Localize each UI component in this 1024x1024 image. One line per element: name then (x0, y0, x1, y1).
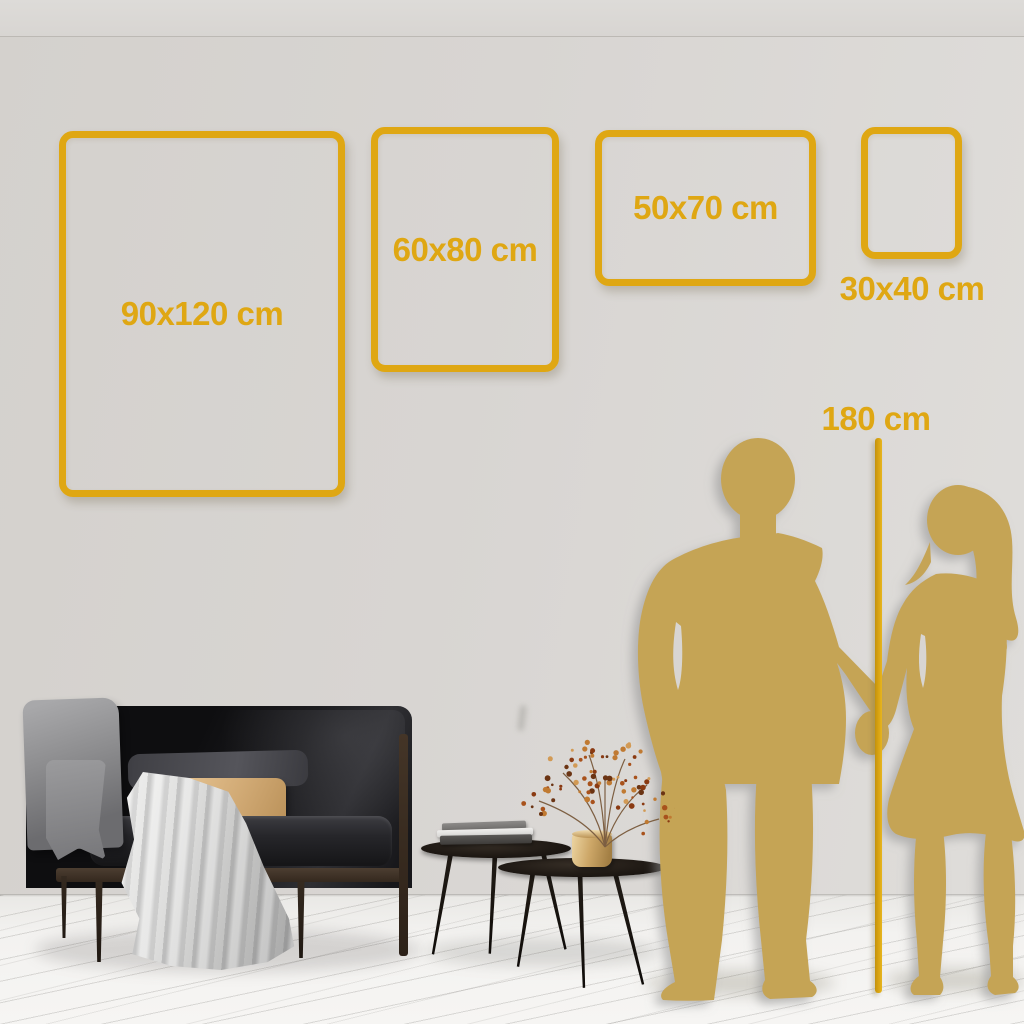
frame-label-90x120: 90x120 cm (121, 295, 283, 333)
frame-label-50x70: 50x70 cm (633, 189, 778, 227)
branch-stems (539, 755, 659, 847)
dried-branch (505, 733, 675, 851)
poster-size-guide-scene: 90x120 cm 60x80 cm 50x70 cm 30x40 cm 180… (0, 0, 1024, 1024)
height-reference-label: 180 cm (806, 400, 946, 438)
frame-50x70: 50x70 cm (595, 130, 816, 286)
frame-60x80: 60x80 cm (371, 127, 559, 372)
woman-silhouette (871, 485, 1024, 995)
height-measure-line (875, 438, 882, 993)
man-silhouette (638, 438, 889, 1001)
frame-30x40 (861, 127, 962, 259)
frame-label-60x80: 60x80 cm (393, 231, 538, 269)
frame-90x120: 90x120 cm (59, 131, 345, 497)
